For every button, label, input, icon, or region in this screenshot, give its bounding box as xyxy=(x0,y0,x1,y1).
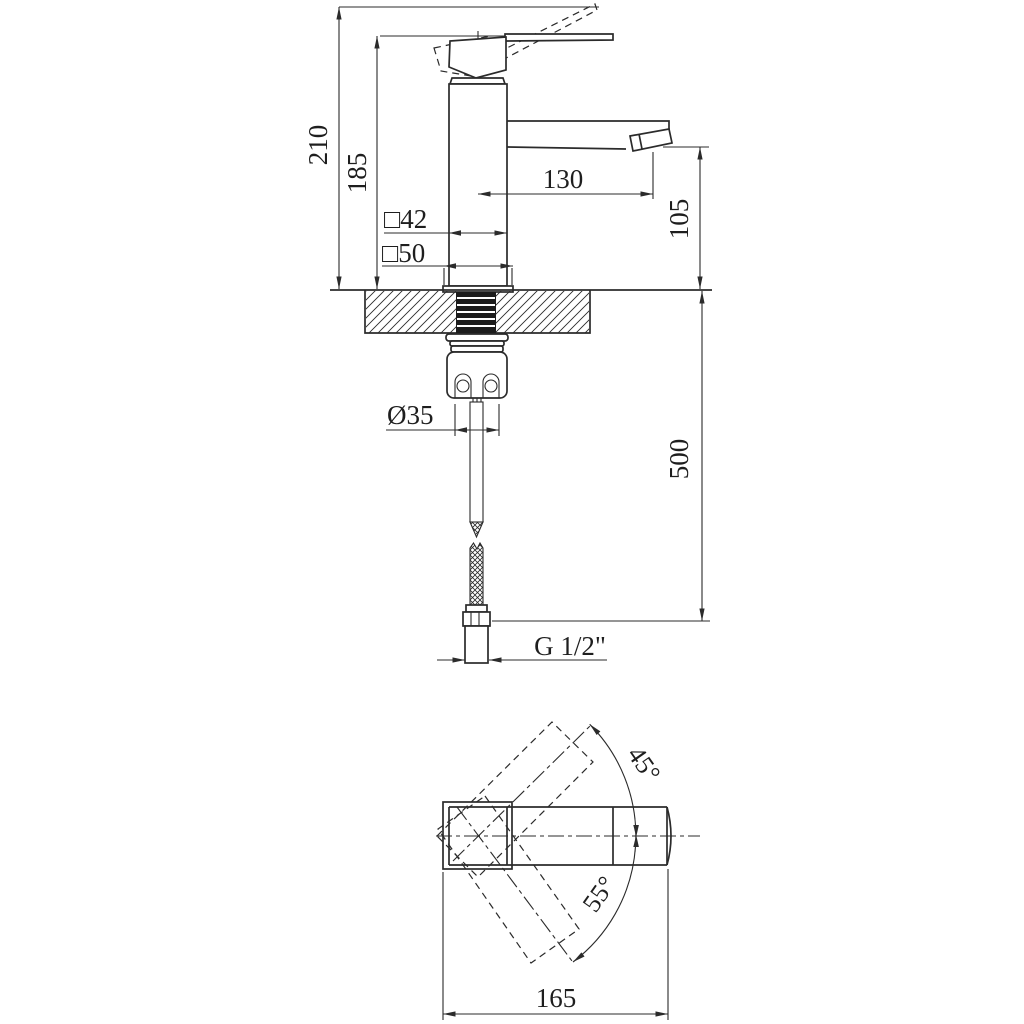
spout xyxy=(507,121,672,151)
dim-42-label: □42 xyxy=(384,204,427,234)
dim-500-label: 500 xyxy=(664,439,694,480)
handle-lever xyxy=(449,34,613,84)
dimension-105: 105 xyxy=(663,147,709,289)
dim-45deg-label: 45° xyxy=(622,741,667,787)
dim-210-label: 210 xyxy=(303,125,333,166)
axis-up-45 xyxy=(453,726,590,861)
dim-105-label: 105 xyxy=(664,199,694,240)
dim-50-label: □50 xyxy=(382,238,425,268)
handle-down-55-dashed xyxy=(438,796,579,963)
top-view: 45° 55° 165 xyxy=(436,722,700,1020)
countertop xyxy=(330,290,712,333)
dimension-35: Ø35 xyxy=(386,400,499,436)
front-view: 210 185 130 105 □42 □50 xyxy=(303,4,712,663)
axis-down-55 xyxy=(457,807,572,961)
dim-thread-label: G 1/2" xyxy=(534,631,606,661)
dimension-165: 165 xyxy=(443,869,668,1020)
dimension-500: 500 xyxy=(492,291,710,621)
dimension-thread: G 1/2" xyxy=(437,631,607,661)
technical-drawing-page: 210 185 130 105 □42 □50 xyxy=(0,0,1024,1024)
aerator xyxy=(630,129,672,151)
threaded-shank xyxy=(456,292,496,333)
dim-165-label: 165 xyxy=(536,983,577,1013)
thread-pipe xyxy=(465,626,488,663)
faucet-drawing-svg: 210 185 130 105 □42 □50 xyxy=(0,0,1024,1024)
dim-55deg-label: 55° xyxy=(577,871,622,917)
mounting-bracket xyxy=(446,334,508,402)
hose-lower-segment xyxy=(470,543,483,605)
dim-185-label: 185 xyxy=(342,153,372,194)
dim-35-label: Ø35 xyxy=(387,400,434,430)
dim-130-label: 130 xyxy=(543,164,584,194)
hose-fitting xyxy=(463,605,490,663)
flexible-hose xyxy=(470,402,483,605)
faucet-body xyxy=(449,84,507,286)
